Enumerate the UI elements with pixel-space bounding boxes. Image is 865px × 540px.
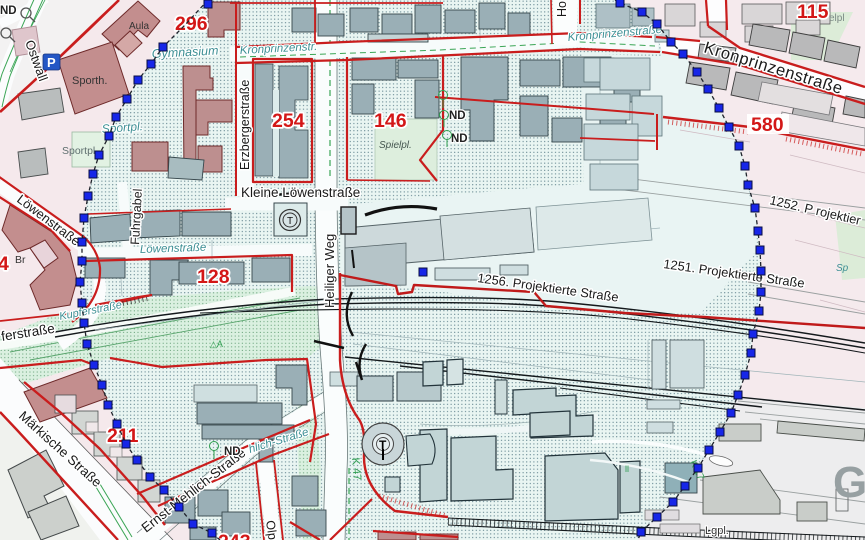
svg-text:P: P	[47, 55, 56, 70]
svg-text:Heiliger Weg: Heiliger Weg	[322, 234, 337, 308]
svg-text:Löwenstraße: Löwenstraße	[140, 242, 207, 256]
svg-text:254: 254	[272, 110, 305, 132]
svg-text:Gl: Gl	[833, 458, 865, 507]
svg-text:Olp: Olp	[263, 519, 280, 540]
svg-text:580: 580	[751, 114, 784, 136]
svg-text:128: 128	[197, 266, 230, 288]
svg-text:146: 146	[374, 110, 407, 132]
svg-text:T: T	[287, 216, 293, 227]
svg-text:K 47: K 47	[349, 457, 363, 481]
svg-text:Sporth.: Sporth.	[72, 75, 107, 87]
svg-text:Lgpl.: Lgpl.	[705, 525, 729, 537]
svg-text:Fuhrgabel: Fuhrgabel	[128, 188, 145, 245]
svg-text:△A: △A	[210, 339, 223, 349]
svg-text:Spielpl.: Spielpl.	[379, 140, 412, 151]
svg-text:115: 115	[797, 1, 829, 23]
svg-text:Kleine Löwenstraße: Kleine Löwenstraße	[241, 185, 360, 200]
svg-text:4: 4	[0, 253, 9, 275]
svg-text:Erzbergerstraße: Erzbergerstraße	[238, 80, 252, 170]
svg-text:ND: ND	[0, 5, 17, 17]
svg-text:Aula: Aula	[129, 21, 149, 32]
svg-text:ND: ND	[451, 133, 468, 145]
svg-text:296: 296	[175, 13, 208, 35]
svg-text:Br: Br	[15, 254, 26, 266]
svg-text:ND: ND	[449, 110, 466, 122]
svg-text:Ho: Ho	[555, 1, 569, 17]
svg-text:ll: ll	[625, 464, 629, 474]
svg-text:elpl: elpl	[829, 13, 845, 24]
svg-text:Sportpl.: Sportpl.	[62, 145, 98, 157]
svg-text:Sp: Sp	[836, 263, 849, 274]
svg-text:243: 243	[218, 531, 251, 540]
svg-text:ND: ND	[224, 446, 241, 458]
